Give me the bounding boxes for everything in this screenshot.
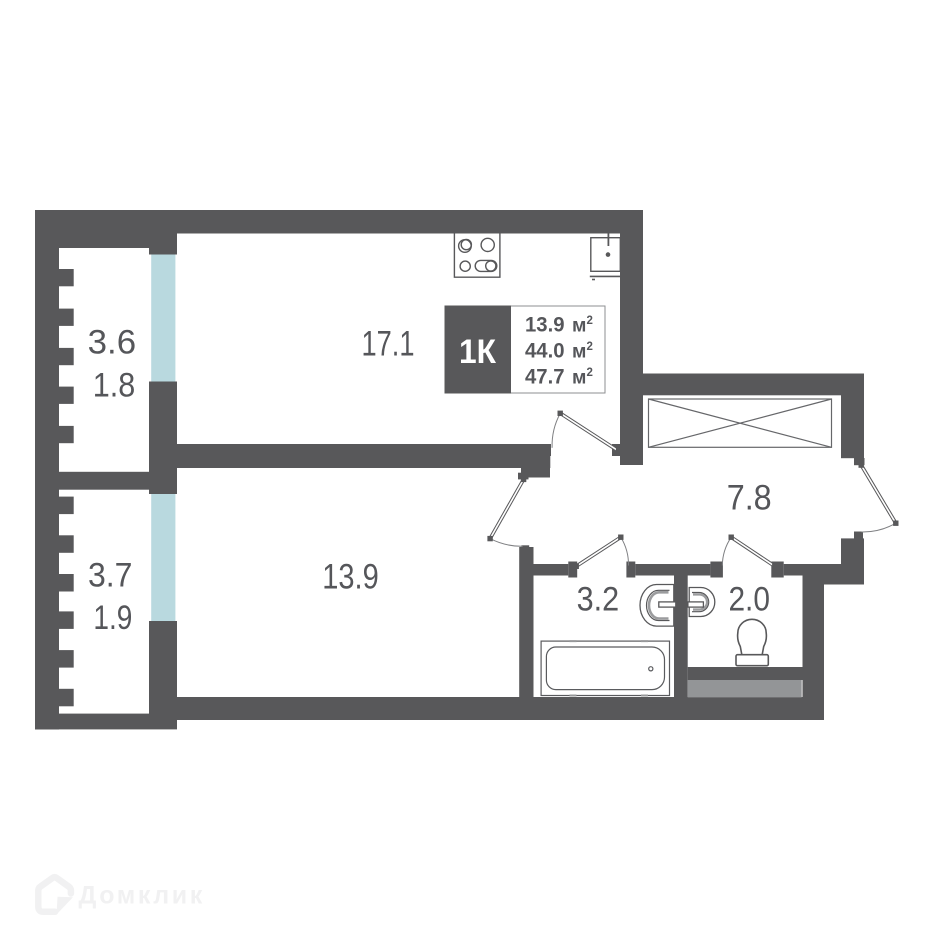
svg-text:3.6: 3.6 [88,323,137,361]
svg-text:1К: 1К [459,333,497,371]
svg-text:3.2: 3.2 [577,581,620,619]
svg-text:2.0: 2.0 [728,581,770,619]
svg-text:13.9м2: 13.9м2 [525,313,593,337]
svg-text:1.8: 1.8 [93,366,136,404]
svg-text:44.0м2: 44.0м2 [525,338,593,362]
svg-text:Домклик: Домклик [79,882,205,910]
svg-text:7.8: 7.8 [727,478,772,517]
svg-text:3.7: 3.7 [88,556,133,594]
svg-text:47.7м2: 47.7м2 [525,364,593,388]
svg-text:17.1: 17.1 [362,324,415,363]
svg-text:13.9: 13.9 [322,557,379,596]
svg-text:1.9: 1.9 [93,599,132,637]
